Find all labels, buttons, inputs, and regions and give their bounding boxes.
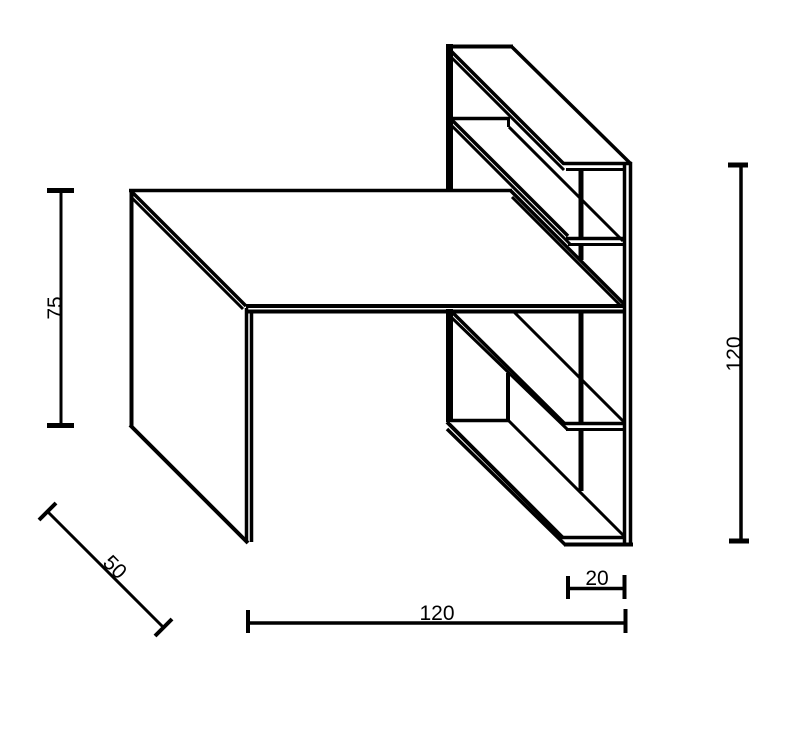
desk <box>129 189 624 543</box>
furniture-technical-drawing: 75 50 120 20 120 <box>0 0 789 741</box>
dimension-desk-width: 120 <box>248 602 627 633</box>
dimension-desk-height: 75 <box>44 191 74 426</box>
dimension-desk-depth: 50 <box>39 503 172 636</box>
shelf-top-left-edge <box>448 48 564 164</box>
desk-top-left-underside-edge <box>131 197 243 309</box>
dim-label-shelf-height: 120 <box>723 336 746 371</box>
desk-top-left-edge <box>131 191 246 306</box>
shelf-bottom-left-edge <box>447 422 563 538</box>
dim-label-desk-width: 120 <box>419 602 454 625</box>
desk-right-edge <box>511 191 624 304</box>
desk-right-underside-edge <box>512 197 621 306</box>
shelf-bottom-left-underside-edge <box>447 429 566 546</box>
shelf2-left-edge <box>452 120 568 236</box>
shelf2-left-underside-edge <box>452 126 570 244</box>
shelf-bottom-right-edge <box>509 421 624 536</box>
dim-label-desk-depth: 50 <box>98 551 131 584</box>
dimension-shelf-height: 120 <box>723 165 749 541</box>
desk-leg-bottom-edge <box>130 425 248 543</box>
dim-label-desk-height: 75 <box>44 296 67 319</box>
shelf2-right-edge <box>509 127 623 241</box>
dimension-shelf-depth: 20 <box>568 567 625 599</box>
drawing-canvas: 75 50 120 20 120 <box>0 0 789 741</box>
dim-label-shelf-depth: 20 <box>585 567 608 590</box>
shelf-unit <box>446 44 633 546</box>
shelf-top-left-underside-edge <box>448 54 564 170</box>
shelf3-right-edge <box>514 312 624 422</box>
